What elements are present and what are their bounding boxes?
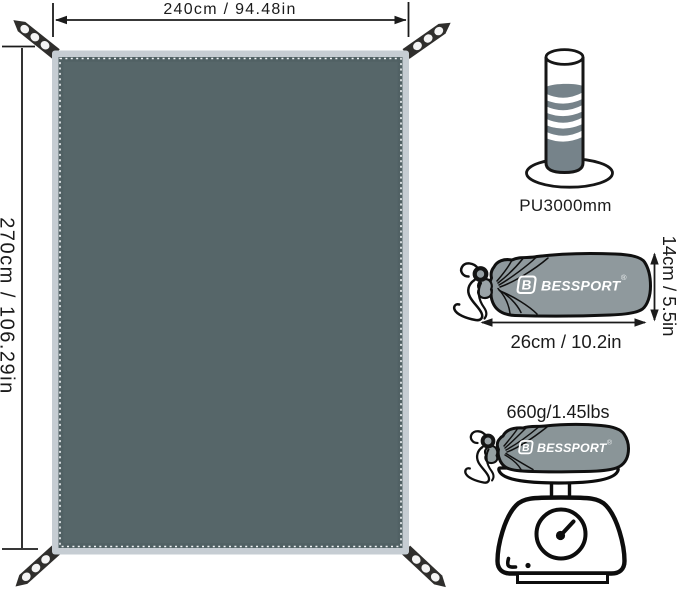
svg-text:PU3000mm: PU3000mm xyxy=(519,196,612,215)
svg-text:660g/1.45lbs: 660g/1.45lbs xyxy=(506,402,609,422)
svg-text:®: ® xyxy=(607,439,612,447)
svg-text:270cm / 106.29in: 270cm / 106.29in xyxy=(0,217,18,394)
svg-text:B: B xyxy=(521,443,530,454)
svg-text:BESSPORT: BESSPORT xyxy=(537,441,608,455)
svg-text:240cm / 94.48in: 240cm / 94.48in xyxy=(163,1,296,18)
svg-text:BESSPORT: BESSPORT xyxy=(541,279,622,295)
svg-text:®: ® xyxy=(621,273,627,282)
svg-text:14cm / 5.5in: 14cm / 5.5in xyxy=(659,236,679,337)
svg-text:26cm / 10.2in: 26cm / 10.2in xyxy=(510,331,621,352)
